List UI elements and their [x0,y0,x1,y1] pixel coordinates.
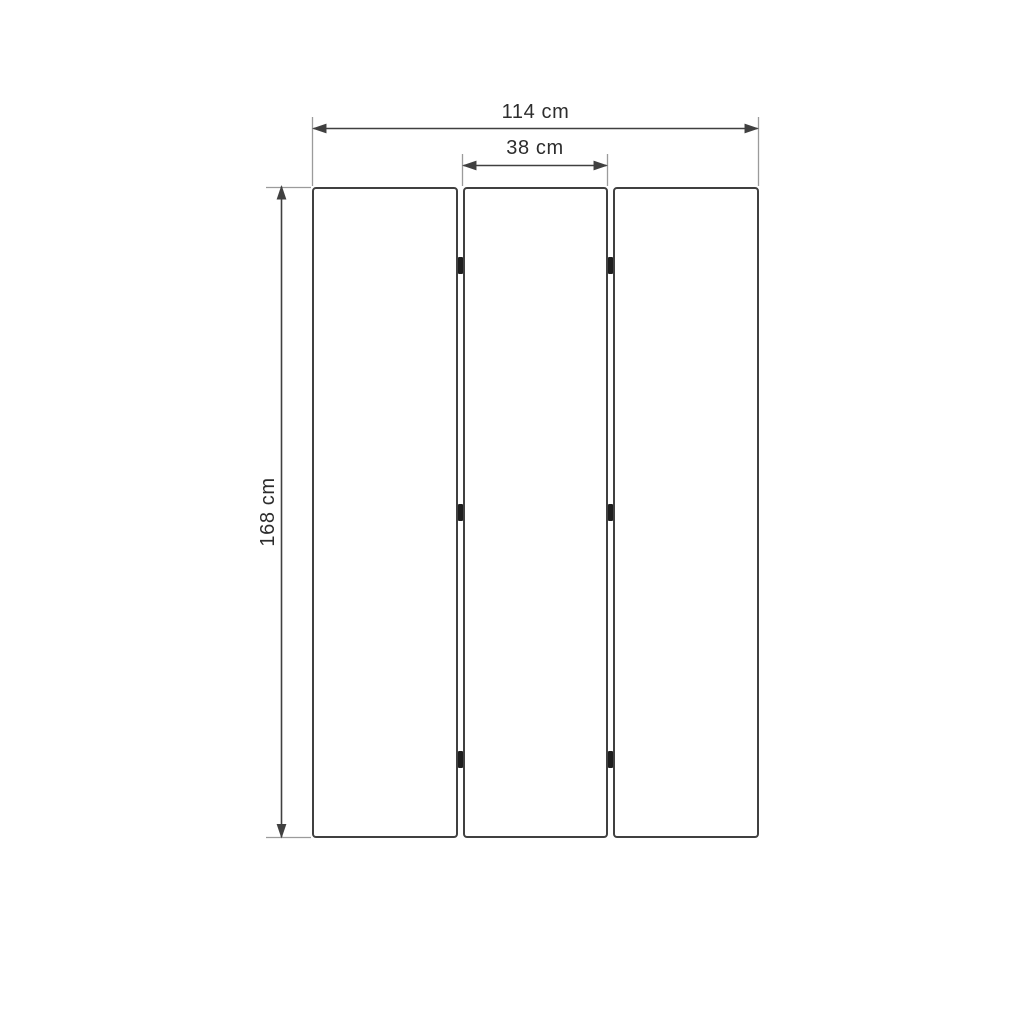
hinge-left-bottom [458,751,463,768]
hinge-right-top [608,257,613,274]
panel-group [312,187,759,838]
panel-right [613,187,759,838]
dimension-diagram: 114 cm 38 cm 168 cm [0,0,1024,1024]
height-label: 168 cm [258,477,278,546]
panel-center [463,187,609,838]
hinge-left-top [458,257,463,274]
hinge-right-bottom [608,751,613,768]
panel-left [312,187,458,838]
total-width-label: 114 cm [312,102,759,122]
hinge-right-middle [608,504,613,521]
panel-width-label: 38 cm [462,138,608,158]
hinge-left-middle [458,504,463,521]
